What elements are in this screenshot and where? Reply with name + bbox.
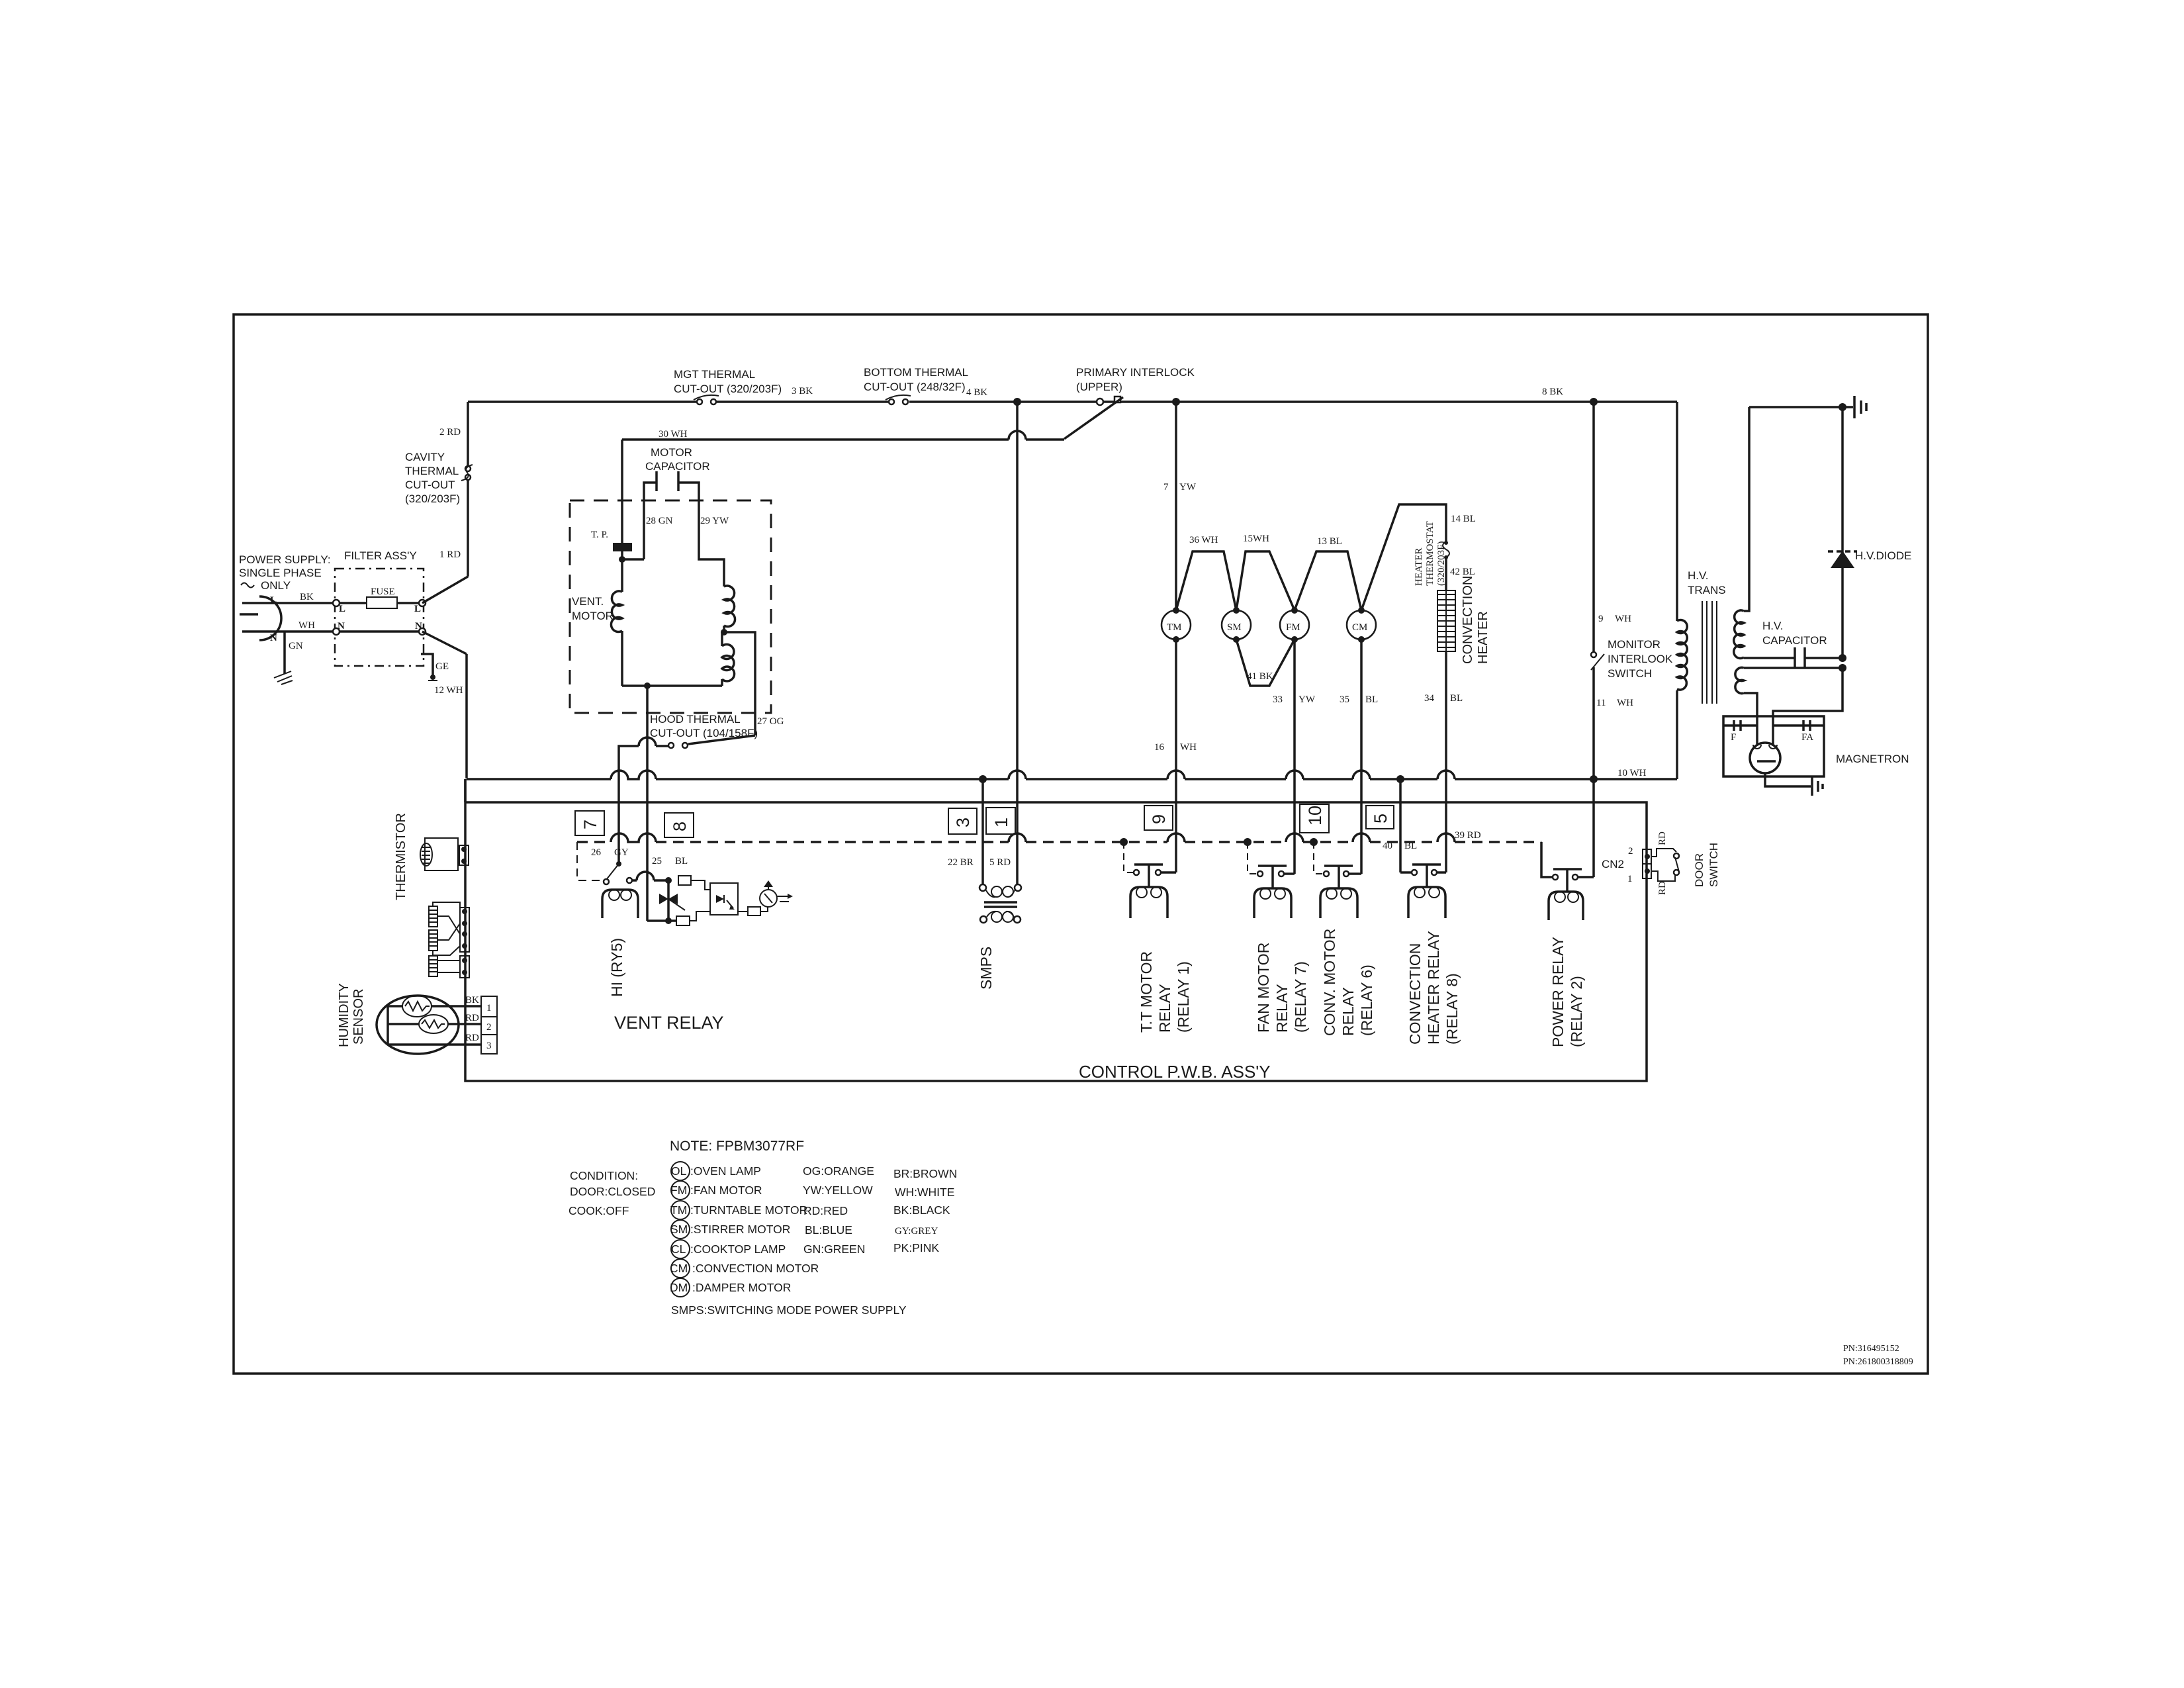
svg-text:CUT-OUT (248/32F): CUT-OUT (248/32F) [864, 381, 966, 393]
svg-text:CUT-OUT: CUT-OUT [405, 479, 455, 491]
svg-text:RD:RED: RD:RED [803, 1204, 848, 1217]
svg-text:TRANS: TRANS [1688, 584, 1726, 596]
svg-text:OL: OL [671, 1164, 687, 1178]
svg-text:40: 40 [1383, 841, 1392, 851]
svg-text:2: 2 [1628, 846, 1633, 857]
svg-text:HEATER: HEATER [1476, 611, 1490, 664]
svg-text:MAGNETRON: MAGNETRON [1836, 753, 1909, 765]
svg-text:SMPS: SMPS [978, 947, 995, 990]
svg-text:TM: TM [1167, 622, 1182, 633]
svg-text:THERMAL: THERMAL [405, 465, 459, 477]
svg-text:HI (RY5): HI (RY5) [608, 938, 625, 997]
svg-text:BL: BL [1450, 693, 1463, 704]
svg-text:MOTOR: MOTOR [572, 610, 614, 622]
svg-text:NOTE: FPBM3077RF: NOTE: FPBM3077RF [670, 1139, 804, 1154]
svg-text:42 BL: 42 BL [1450, 567, 1475, 577]
svg-text:OG:ORANGE: OG:ORANGE [803, 1164, 874, 1178]
svg-text:PRIMARY INTERLOCK: PRIMARY INTERLOCK [1076, 366, 1195, 379]
svg-text:INTERLOOK: INTERLOOK [1608, 653, 1673, 665]
svg-text:(RELAY 2): (RELAY 2) [1568, 976, 1585, 1047]
svg-text:10 WH: 10 WH [1617, 768, 1647, 778]
svg-text:SM: SM [1227, 622, 1242, 633]
svg-text:N: N [338, 621, 345, 632]
svg-text:WH: WH [1180, 742, 1197, 753]
svg-text:CONDITION:: CONDITION: [570, 1169, 638, 1182]
svg-text:BL: BL [675, 856, 688, 867]
svg-text:CM: CM [1352, 622, 1367, 633]
svg-text:1 RD: 1 RD [439, 549, 461, 560]
svg-text:35: 35 [1340, 694, 1349, 705]
svg-text:FILTER ASS'Y: FILTER ASS'Y [344, 549, 417, 562]
svg-text:N: N [270, 633, 277, 643]
svg-text:THERMISTOR: THERMISTOR [394, 813, 408, 900]
svg-text:CN2: CN2 [1602, 858, 1624, 870]
svg-text:MONITOR: MONITOR [1608, 638, 1661, 651]
svg-text:BR:BROWN: BR:BROWN [893, 1167, 957, 1180]
svg-text:25: 25 [652, 856, 662, 867]
svg-text:HOOD THERMAL: HOOD THERMAL [650, 713, 741, 726]
svg-text:FAN MOTOR: FAN MOTOR [1255, 943, 1272, 1033]
svg-text:FM: FM [670, 1184, 687, 1197]
svg-text:BL: BL [1404, 841, 1417, 851]
svg-text:9: 9 [1149, 814, 1169, 824]
svg-text:8 BK: 8 BK [1542, 387, 1563, 397]
svg-text:CUT-OUT (320/203F): CUT-OUT (320/203F) [674, 383, 782, 395]
svg-text:(RELAY 1): (RELAY 1) [1175, 961, 1192, 1033]
svg-text:T.T MOTOR: T.T MOTOR [1138, 951, 1155, 1033]
svg-text:BL: BL [1365, 694, 1378, 705]
svg-text:CAPACITOR: CAPACITOR [645, 460, 710, 473]
svg-text:COOK:OFF: COOK:OFF [569, 1204, 629, 1217]
svg-text:SENSOR: SENSOR [351, 989, 366, 1045]
svg-text:7: 7 [1163, 482, 1169, 492]
svg-text:1: 1 [991, 818, 1011, 827]
svg-text:THERMOSTAT: THERMOSTAT [1425, 521, 1435, 586]
svg-text:11: 11 [1596, 698, 1606, 708]
svg-text:GY: GY [614, 847, 629, 858]
svg-text:2 RD: 2 RD [439, 427, 461, 438]
svg-text:WH: WH [1617, 698, 1633, 708]
svg-text:28 GN: 28 GN [646, 516, 673, 526]
svg-text:H.V.DIODE: H.V.DIODE [1855, 549, 1911, 562]
svg-text:2: 2 [486, 1022, 492, 1033]
svg-text:H.V.: H.V. [1762, 620, 1784, 632]
svg-text:N: N [415, 621, 422, 632]
svg-text:15WH: 15WH [1243, 534, 1269, 544]
svg-text:HUMIDITY: HUMIDITY [337, 983, 351, 1047]
svg-text:CONV. MOTOR: CONV. MOTOR [1321, 929, 1338, 1036]
svg-text:BK: BK [300, 592, 314, 602]
svg-text:FM: FM [1286, 622, 1300, 633]
svg-text:CONVECTION: CONVECTION [1406, 943, 1424, 1045]
svg-text:(320/203F): (320/203F) [405, 492, 460, 505]
svg-text:GN: GN [289, 641, 303, 651]
svg-text:27 OG: 27 OG [757, 716, 784, 727]
svg-text:YW: YW [1298, 694, 1316, 705]
svg-text:RELAY: RELAY [1273, 984, 1291, 1033]
svg-text:TM: TM [670, 1203, 687, 1217]
svg-text:9: 9 [1598, 614, 1604, 624]
svg-text::DAMPER MOTOR: :DAMPER MOTOR [692, 1281, 791, 1294]
svg-text:VENT.: VENT. [572, 595, 604, 608]
svg-text:BOTTOM THERMAL: BOTTOM THERMAL [864, 366, 968, 379]
svg-text:DOOR: DOOR [1693, 853, 1706, 887]
svg-text:RD: RD [1657, 881, 1668, 895]
svg-text::FAN MOTOR: :FAN MOTOR [690, 1184, 762, 1197]
svg-text:CL: CL [671, 1243, 686, 1256]
svg-text:SINGLE PHASE: SINGLE PHASE [239, 567, 322, 579]
svg-text:FUSE: FUSE [371, 586, 395, 597]
svg-text:FA: FA [1801, 732, 1813, 743]
svg-text::OVEN LAMP: :OVEN LAMP [690, 1164, 761, 1178]
svg-text:RD: RD [465, 1013, 479, 1023]
svg-text:DOOR:CLOSED: DOOR:CLOSED [570, 1185, 655, 1198]
svg-text:12 WH: 12 WH [434, 685, 463, 696]
svg-text:POWER RELAY: POWER RELAY [1549, 937, 1567, 1047]
svg-text:BK: BK [465, 995, 479, 1006]
svg-text:41 BK: 41 BK [1247, 671, 1273, 682]
svg-text:RD: RD [465, 1033, 479, 1043]
svg-text:SM: SM [670, 1223, 688, 1236]
svg-text:ONLY: ONLY [261, 579, 291, 592]
svg-text:26: 26 [591, 847, 602, 858]
svg-text:POWER SUPPLY:: POWER SUPPLY: [239, 553, 331, 566]
svg-text::COOKTOP LAMP: :COOKTOP LAMP [690, 1243, 786, 1256]
svg-text:CM: CM [670, 1262, 688, 1275]
svg-text:DM: DM [670, 1281, 688, 1294]
svg-text:PK:PINK: PK:PINK [893, 1241, 939, 1254]
svg-text:MOTOR: MOTOR [651, 446, 692, 459]
svg-text:HEATER: HEATER [1414, 548, 1424, 586]
svg-text:33: 33 [1273, 694, 1283, 705]
svg-text:1: 1 [486, 1003, 492, 1013]
svg-text:WH: WH [298, 620, 315, 631]
svg-text:29 YW: 29 YW [700, 516, 729, 526]
svg-text:GY:GREY: GY:GREY [895, 1226, 938, 1237]
svg-text:T. P.: T. P. [591, 530, 608, 540]
svg-text:SMPS:SWITCHING MODE POWER SUPP: SMPS:SWITCHING MODE POWER SUPPLY [671, 1303, 907, 1317]
svg-text:(UPPER): (UPPER) [1076, 381, 1122, 393]
svg-text:(RELAY 7): (RELAY 7) [1292, 961, 1309, 1033]
svg-text:22 BR: 22 BR [948, 857, 974, 868]
svg-text:CONVECTION: CONVECTION [1461, 576, 1475, 664]
svg-text:GE: GE [435, 661, 449, 672]
svg-text:5 RD: 5 RD [989, 857, 1011, 868]
svg-text:CONTROL P.W.B. ASS'Y: CONTROL P.W.B. ASS'Y [1079, 1062, 1271, 1082]
svg-text:VENT RELAY: VENT RELAY [614, 1013, 724, 1033]
svg-text::STIRRER MOTOR: :STIRRER MOTOR [690, 1223, 790, 1236]
svg-text:8: 8 [670, 821, 690, 831]
svg-text:SWITCH: SWITCH [1608, 667, 1652, 680]
svg-text::TURNTABLE MOTOR: :TURNTABLE MOTOR [690, 1203, 807, 1217]
svg-text:36 WH: 36 WH [1189, 535, 1218, 545]
svg-text:PN:261800318809: PN:261800318809 [1843, 1357, 1913, 1367]
svg-text:14 BL: 14 BL [1451, 514, 1476, 524]
svg-text:GN:GREEN: GN:GREEN [803, 1243, 865, 1256]
svg-text::CONVECTION MOTOR: :CONVECTION MOTOR [692, 1262, 819, 1275]
svg-text:39 RD: 39 RD [1455, 830, 1481, 841]
svg-text:1: 1 [1627, 874, 1633, 884]
svg-text:CAVITY: CAVITY [405, 451, 445, 463]
svg-text:30 WH: 30 WH [659, 429, 688, 440]
svg-text:SWITCH: SWITCH [1707, 843, 1720, 887]
svg-text:4 BK: 4 BK [966, 387, 987, 398]
svg-text:13 BL: 13 BL [1317, 536, 1342, 547]
svg-text:7: 7 [580, 820, 600, 829]
svg-text:L: L [414, 604, 421, 614]
svg-text:YW:YELLOW: YW:YELLOW [803, 1184, 873, 1197]
svg-text:PN:316495152: PN:316495152 [1843, 1344, 1899, 1354]
svg-text:RELAY: RELAY [1340, 987, 1357, 1036]
svg-text:3: 3 [486, 1041, 492, 1051]
svg-text:34: 34 [1424, 693, 1435, 704]
svg-text:HEATER RELAY: HEATER RELAY [1425, 931, 1442, 1045]
svg-text:3: 3 [953, 818, 973, 827]
svg-text:WH:WHITE: WH:WHITE [895, 1186, 954, 1199]
svg-text:MGT THERMAL: MGT THERMAL [674, 368, 755, 381]
svg-text:CAPACITOR: CAPACITOR [1762, 634, 1827, 647]
svg-text:16: 16 [1154, 742, 1165, 753]
svg-text:RD: RD [1657, 831, 1668, 845]
svg-text:BL:BLUE: BL:BLUE [805, 1223, 852, 1237]
svg-text:5: 5 [1371, 814, 1390, 823]
svg-text:YW: YW [1179, 482, 1197, 492]
svg-text:L: L [339, 604, 345, 614]
svg-text:RELAY: RELAY [1156, 984, 1173, 1033]
svg-text:H.V.: H.V. [1688, 569, 1709, 582]
svg-text:F: F [1731, 732, 1736, 743]
svg-text:WH: WH [1615, 614, 1631, 624]
svg-text:(RELAY 8): (RELAY 8) [1443, 973, 1461, 1045]
svg-text:(RELAY 6): (RELAY 6) [1358, 964, 1375, 1036]
svg-text:3 BK: 3 BK [792, 386, 813, 397]
svg-text:BK:BLACK: BK:BLACK [893, 1203, 950, 1217]
svg-text:10: 10 [1305, 806, 1325, 825]
